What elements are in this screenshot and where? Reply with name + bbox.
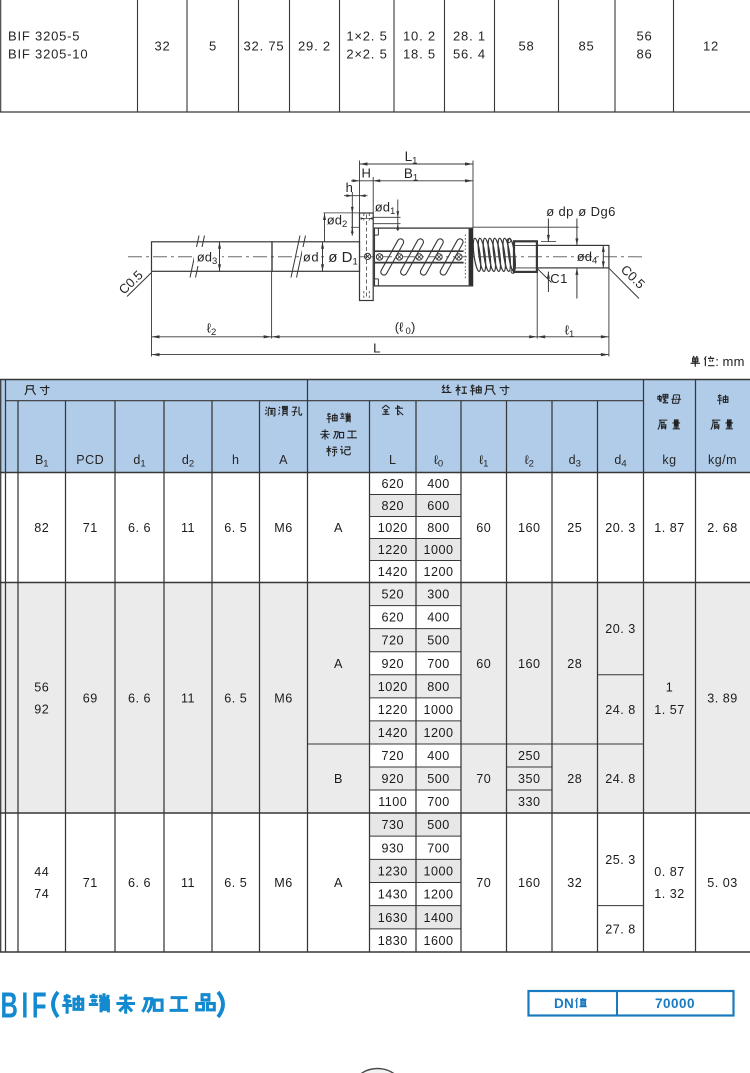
svg-text:B: B (334, 772, 343, 786)
svg-text:ød: ød (197, 249, 212, 264)
svg-text:L: L (373, 341, 381, 356)
svg-text:5. 03: 5. 03 (707, 876, 738, 890)
svg-text:ød: ød (577, 249, 592, 264)
svg-text:ø Dg6: ø Dg6 (578, 204, 615, 219)
svg-text:6. 5: 6. 5 (224, 691, 247, 705)
svg-text:700: 700 (427, 841, 450, 855)
svg-text:0. 87: 0. 87 (654, 865, 685, 879)
svg-text:BIF 3205-10: BIF 3205-10 (8, 47, 88, 62)
svg-text:58: 58 (518, 39, 534, 54)
svg-text:4: 4 (621, 459, 626, 470)
svg-text:M6: M6 (274, 521, 293, 535)
svg-text:56. 4: 56. 4 (453, 47, 486, 62)
svg-text:60: 60 (476, 657, 491, 671)
svg-text:A: A (334, 657, 343, 671)
svg-text:11: 11 (181, 876, 195, 890)
svg-text:500: 500 (427, 634, 450, 648)
svg-text:1200: 1200 (423, 888, 453, 902)
svg-text:1000: 1000 (423, 543, 453, 557)
svg-text:B: B (35, 453, 43, 467)
svg-text:d: d (569, 453, 576, 467)
svg-text:2: 2 (529, 459, 534, 470)
svg-text:25: 25 (567, 521, 582, 535)
svg-text:2: 2 (189, 459, 194, 470)
svg-text:1020: 1020 (378, 680, 408, 694)
svg-text:70: 70 (476, 772, 491, 786)
svg-text:1: 1 (569, 329, 574, 340)
svg-text:1. 57: 1. 57 (654, 703, 685, 717)
svg-text:28. 1: 28. 1 (453, 29, 486, 44)
svg-text:ød: ød (375, 200, 390, 215)
svg-text:160: 160 (518, 657, 541, 671)
svg-text:H: H (362, 166, 372, 181)
svg-text:0: 0 (438, 459, 443, 470)
svg-text:700: 700 (427, 657, 450, 671)
svg-text:DN: DN (554, 996, 574, 1011)
svg-text:250: 250 (518, 749, 541, 763)
svg-text:44: 44 (34, 865, 49, 879)
svg-text:70000: 70000 (655, 996, 695, 1011)
svg-text:600: 600 (427, 499, 450, 513)
svg-text:1: 1 (483, 459, 488, 470)
svg-text:700: 700 (427, 795, 450, 809)
svg-text:1. 32: 1. 32 (654, 887, 685, 901)
svg-text:82: 82 (34, 521, 49, 535)
svg-text:1: 1 (43, 459, 48, 470)
svg-text:720: 720 (381, 749, 404, 763)
svg-text:69: 69 (83, 691, 98, 705)
svg-text:6. 6: 6. 6 (128, 691, 151, 705)
svg-text:930: 930 (381, 841, 404, 855)
svg-text:60: 60 (476, 521, 491, 535)
svg-text:1: 1 (140, 459, 145, 470)
svg-text:1000: 1000 (423, 864, 453, 878)
svg-text:ø dp: ø dp (546, 204, 574, 219)
svg-text:mm: mm (723, 354, 745, 369)
svg-text:32: 32 (154, 39, 170, 54)
svg-text:74: 74 (34, 887, 49, 901)
svg-text:400: 400 (427, 611, 450, 625)
svg-text:1230: 1230 (378, 864, 408, 878)
svg-text:11: 11 (181, 691, 195, 705)
svg-text:300: 300 (427, 588, 450, 602)
svg-text:1200: 1200 (423, 726, 453, 740)
svg-text:160: 160 (518, 521, 541, 535)
svg-text:1. 87: 1. 87 (654, 521, 685, 535)
svg-text:1220: 1220 (378, 703, 408, 717)
svg-text:B: B (404, 166, 413, 181)
svg-text:6. 5: 6. 5 (224, 876, 247, 890)
svg-text:BIF 3205-5: BIF 3205-5 (8, 29, 80, 44)
svg-text:1200: 1200 (423, 565, 453, 579)
svg-text:71: 71 (83, 521, 98, 535)
svg-text:24. 8: 24. 8 (605, 703, 636, 717)
svg-text:A: A (334, 521, 343, 535)
svg-text:1830: 1830 (378, 934, 408, 948)
svg-text:1420: 1420 (378, 565, 408, 579)
svg-text:20. 3: 20. 3 (605, 622, 636, 636)
svg-text:400: 400 (427, 477, 450, 491)
svg-text:520: 520 (381, 588, 404, 602)
svg-text:3: 3 (576, 459, 581, 470)
svg-text:10. 2: 10. 2 (403, 29, 436, 44)
svg-text:ød: ød (303, 249, 319, 264)
svg-text:1: 1 (390, 206, 395, 217)
svg-text:70: 70 (476, 876, 491, 890)
svg-text:0: 0 (406, 326, 411, 337)
svg-text:d: d (133, 453, 140, 467)
svg-text:ø D: ø D (328, 249, 352, 266)
svg-text:85: 85 (578, 39, 594, 54)
svg-text:kg/m: kg/m (708, 453, 737, 467)
svg-text:620: 620 (381, 477, 404, 491)
svg-text:32: 32 (567, 876, 582, 890)
svg-text:2: 2 (342, 219, 347, 230)
svg-text:1600: 1600 (423, 934, 453, 948)
svg-text:820: 820 (381, 499, 404, 513)
svg-text:kg: kg (662, 453, 676, 467)
svg-text:1: 1 (412, 155, 417, 166)
svg-text:A: A (334, 876, 343, 890)
svg-text:92: 92 (34, 702, 49, 716)
svg-text:20. 3: 20. 3 (605, 521, 636, 535)
svg-text:1630: 1630 (378, 911, 408, 925)
svg-text:25. 3: 25. 3 (605, 853, 636, 867)
svg-text:d: d (614, 453, 621, 467)
svg-text:1420: 1420 (378, 726, 408, 740)
svg-text:730: 730 (381, 818, 404, 832)
svg-text:11: 11 (181, 521, 195, 535)
svg-text:400: 400 (427, 749, 450, 763)
svg-text:24. 8: 24. 8 (605, 772, 636, 786)
svg-text:28: 28 (567, 657, 582, 671)
svg-text:3. 89: 3. 89 (707, 691, 738, 705)
svg-text:71: 71 (83, 876, 98, 890)
svg-text:2×2. 5: 2×2. 5 (346, 47, 387, 62)
svg-text:2: 2 (211, 327, 216, 338)
svg-text:500: 500 (427, 818, 450, 832)
svg-text:330: 330 (518, 795, 541, 809)
svg-text:28: 28 (567, 772, 582, 786)
svg-text:3: 3 (212, 256, 217, 267)
svg-text:): ) (411, 320, 415, 335)
svg-text:29. 2: 29. 2 (298, 39, 331, 54)
svg-text:920: 920 (381, 657, 404, 671)
svg-text:h: h (232, 453, 239, 467)
svg-text:1020: 1020 (378, 521, 408, 535)
svg-text:6. 6: 6. 6 (128, 876, 151, 890)
svg-text:160: 160 (518, 876, 541, 890)
svg-text:86: 86 (636, 47, 652, 62)
svg-text:BIF: BIF (1, 984, 51, 1025)
svg-text:12: 12 (703, 39, 719, 54)
svg-text:720: 720 (381, 634, 404, 648)
svg-text:(ℓ: (ℓ (395, 320, 404, 335)
svg-text:1: 1 (666, 680, 674, 694)
svg-text:1: 1 (352, 256, 357, 267)
svg-text:ød: ød (327, 213, 342, 228)
svg-text:800: 800 (427, 680, 450, 694)
svg-text::: : (715, 354, 719, 369)
svg-text:h: h (346, 180, 354, 195)
svg-text:d: d (182, 453, 189, 467)
svg-text:2. 68: 2. 68 (707, 521, 738, 535)
svg-text:32. 75: 32. 75 (244, 39, 285, 54)
svg-text:4: 4 (592, 255, 597, 266)
svg-text:500: 500 (427, 772, 450, 786)
svg-text:PCD: PCD (76, 453, 104, 467)
svg-text:800: 800 (427, 521, 450, 535)
svg-text:M6: M6 (274, 876, 293, 890)
svg-text:56: 56 (636, 29, 652, 44)
svg-text:1220: 1220 (378, 543, 408, 557)
svg-text:620: 620 (381, 611, 404, 625)
svg-text:6. 5: 6. 5 (224, 521, 247, 535)
svg-text:27. 8: 27. 8 (605, 922, 636, 936)
svg-text:18. 5: 18. 5 (403, 47, 436, 62)
svg-text:56: 56 (34, 680, 49, 694)
svg-text:1×2. 5: 1×2. 5 (346, 29, 387, 44)
svg-text:M6: M6 (274, 691, 293, 705)
svg-text:1000: 1000 (423, 703, 453, 717)
svg-text:1100: 1100 (378, 795, 407, 809)
svg-text:350: 350 (518, 772, 541, 786)
svg-text:6. 6: 6. 6 (128, 521, 151, 535)
svg-text:1400: 1400 (423, 911, 453, 925)
svg-text:L: L (389, 453, 396, 467)
svg-text:1: 1 (413, 172, 418, 183)
svg-text:920: 920 (381, 772, 404, 786)
svg-text:5: 5 (209, 39, 217, 54)
svg-text:1430: 1430 (378, 888, 408, 902)
svg-text:C1: C1 (550, 271, 568, 286)
svg-text:A: A (279, 453, 288, 467)
